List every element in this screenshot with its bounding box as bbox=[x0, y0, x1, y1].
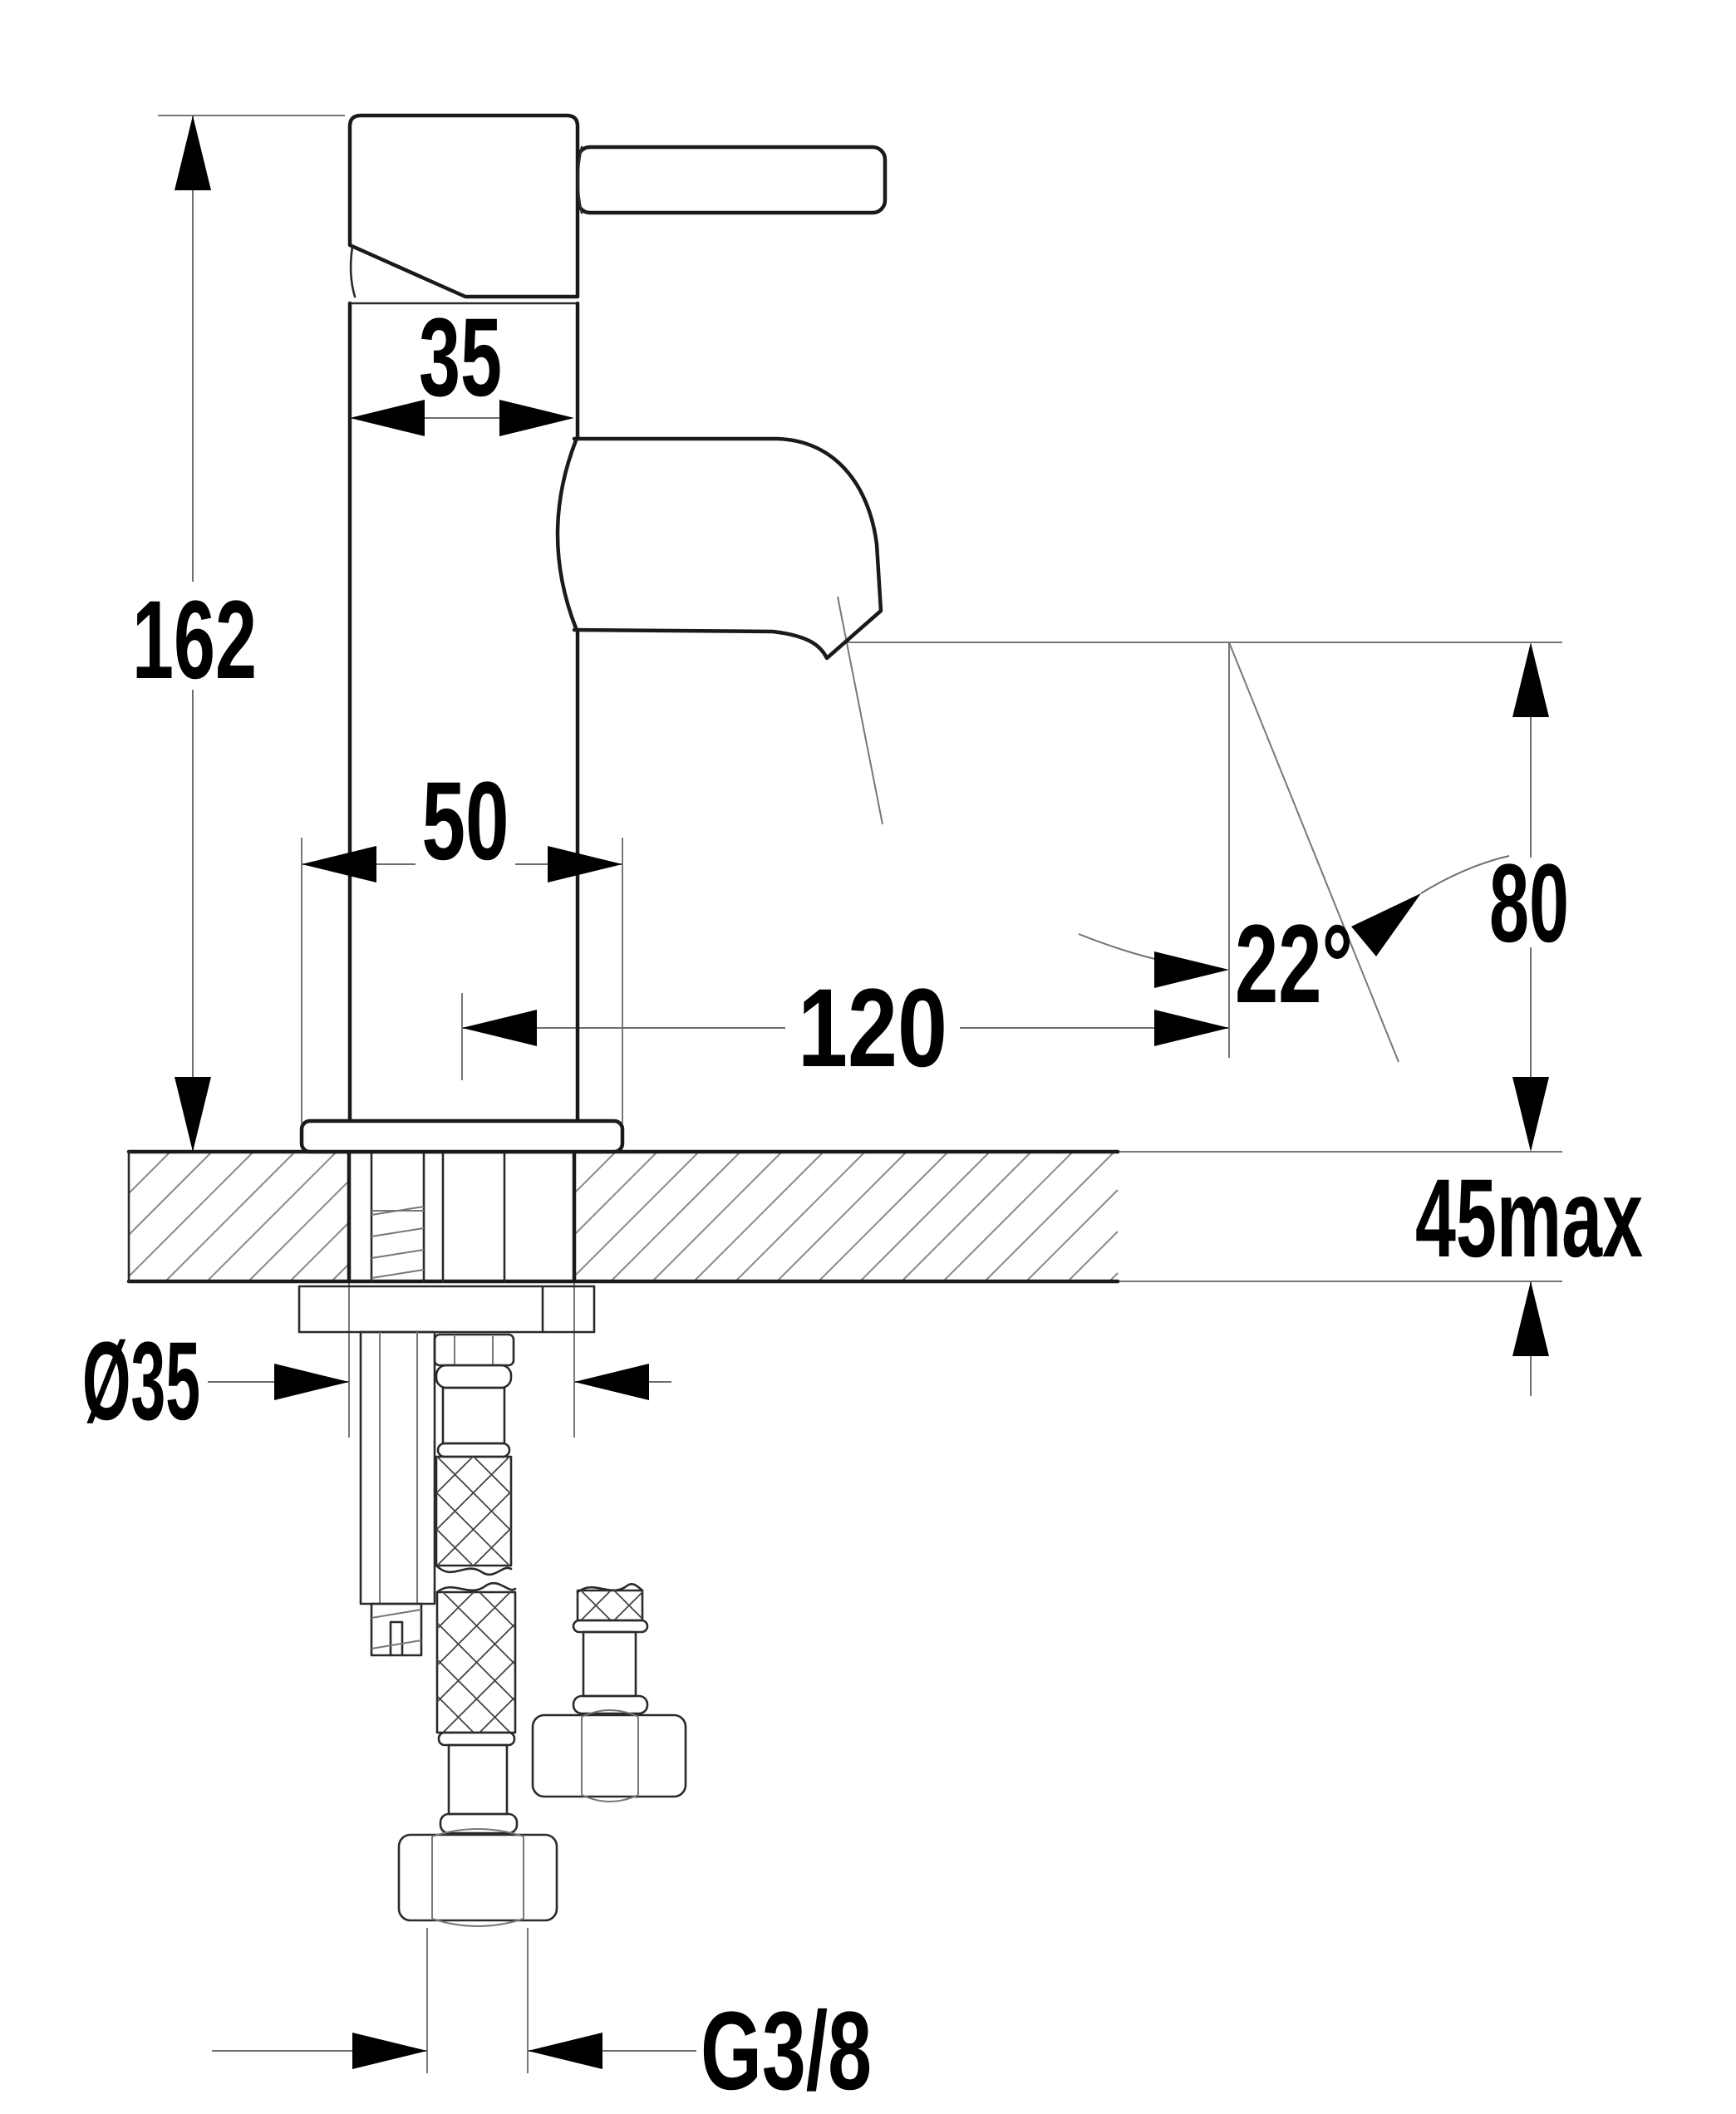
pattern-line bbox=[652, 1152, 782, 1281]
mounting-washer bbox=[299, 1286, 594, 1332]
arrow-45max-up bbox=[1512, 1281, 1549, 1356]
pattern-line bbox=[694, 1152, 824, 1281]
technical-drawing: 162 35 50 120 22° 80 45max Ø35 G3/8 bbox=[0, 0, 1736, 2114]
pattern-line bbox=[437, 1457, 511, 1531]
pattern-line bbox=[248, 1181, 349, 1281]
hose2-collar bbox=[573, 1620, 647, 1632]
dim-label-base-width: 50 bbox=[422, 760, 509, 883]
head-pivot-seam bbox=[351, 247, 355, 297]
hose1-break-edge-top bbox=[436, 1566, 511, 1575]
hose2-braid bbox=[578, 1590, 642, 1620]
arrow-angle-arc bbox=[1154, 951, 1229, 988]
arrow-hole-right bbox=[574, 1364, 649, 1400]
hose2-tube bbox=[583, 1632, 636, 1696]
arrow-162-down bbox=[175, 1077, 211, 1152]
pattern-line bbox=[1026, 1190, 1118, 1281]
pattern-line bbox=[943, 1152, 1073, 1281]
hose1-braid-upper-pattern bbox=[436, 1457, 511, 1566]
hose2-braid-pattern bbox=[581, 1590, 642, 1620]
rod-tip-line-2 bbox=[371, 1640, 421, 1649]
stud-thread-3 bbox=[371, 1250, 424, 1258]
spout-outline bbox=[574, 439, 881, 658]
dim-label-spout-reach: 120 bbox=[798, 966, 947, 1090]
drawing-canvas: 162 35 50 120 22° 80 45max Ø35 G3/8 bbox=[0, 0, 1736, 2114]
stud-thread-2 bbox=[371, 1228, 424, 1236]
dim-label-body-width: 35 bbox=[419, 296, 502, 420]
hose1-g38-nut bbox=[399, 1835, 557, 1920]
pattern-line bbox=[129, 1152, 253, 1276]
worktop-hatch-right bbox=[574, 1152, 1118, 1281]
dim-label-deck-thickness: 45max bbox=[1415, 1157, 1643, 1281]
pattern-line bbox=[129, 1152, 212, 1235]
pattern-line bbox=[332, 1264, 349, 1281]
hose1-lower-ring bbox=[440, 1814, 517, 1833]
pattern-line bbox=[479, 1592, 515, 1628]
hose1-top-tube bbox=[443, 1388, 504, 1443]
arrow-120-left bbox=[462, 1010, 537, 1046]
pattern-line bbox=[443, 1660, 515, 1733]
spout-body-intersection-curve bbox=[558, 440, 576, 628]
hose1-top-nut bbox=[435, 1335, 514, 1365]
arrow-35-right bbox=[499, 400, 574, 436]
arrow-50-right bbox=[548, 846, 622, 882]
fixing-rod bbox=[361, 1332, 435, 1604]
arrow-thread-right bbox=[528, 2033, 602, 2069]
hose1-top-collar bbox=[436, 1365, 511, 1388]
pattern-line bbox=[735, 1152, 865, 1281]
pattern-line bbox=[479, 1697, 515, 1733]
pattern-line bbox=[777, 1152, 907, 1281]
arrow-80-up bbox=[1512, 642, 1549, 717]
pattern-line bbox=[437, 1592, 510, 1665]
pattern-line bbox=[437, 1696, 474, 1733]
pattern-line bbox=[437, 1492, 511, 1566]
pattern-line bbox=[985, 1152, 1114, 1281]
pattern-line bbox=[614, 1590, 642, 1619]
pattern-line bbox=[614, 1592, 642, 1620]
pattern-line bbox=[574, 1152, 616, 1193]
pattern-line bbox=[165, 1152, 295, 1281]
hose1-lower-collar bbox=[439, 1733, 514, 1745]
arrow-thread-left bbox=[352, 2033, 427, 2069]
pattern-line bbox=[207, 1152, 337, 1281]
dim-label-hole-diameter: Ø35 bbox=[82, 1320, 200, 1443]
arrow-50-left bbox=[302, 846, 376, 882]
pattern-line bbox=[860, 1152, 990, 1281]
arrow-120-right bbox=[1154, 1010, 1229, 1046]
stud-thread-4 bbox=[371, 1270, 424, 1278]
pattern-line bbox=[574, 1152, 657, 1235]
rod-tip-line-1 bbox=[371, 1610, 421, 1618]
arrow-35-left bbox=[350, 400, 425, 436]
base-flange bbox=[302, 1121, 622, 1152]
hose1-lower-tube bbox=[449, 1745, 507, 1814]
pattern-line bbox=[443, 1592, 515, 1664]
arrow-angle-leader bbox=[1351, 893, 1421, 956]
pattern-line bbox=[1068, 1232, 1118, 1281]
hose1-band bbox=[438, 1443, 509, 1457]
pattern-line bbox=[574, 1152, 699, 1276]
dim-label-connection-thread: G3/8 bbox=[701, 1989, 872, 2113]
arrow-162-up bbox=[175, 116, 211, 190]
pattern-line bbox=[611, 1152, 740, 1281]
pattern-line bbox=[474, 1528, 511, 1566]
pattern-line bbox=[819, 1152, 948, 1281]
pattern-line bbox=[129, 1152, 170, 1193]
arrow-80-down bbox=[1512, 1077, 1549, 1152]
hose1-braid-lower-pattern bbox=[437, 1592, 515, 1733]
pattern-line bbox=[902, 1152, 1031, 1281]
mixer-head bbox=[350, 116, 578, 297]
dim-label-spout-angle: 22° bbox=[1235, 902, 1353, 1026]
fixing-rod-slot bbox=[391, 1622, 402, 1655]
worktop-hatch-left bbox=[129, 1152, 349, 1281]
hose1-braid-upper bbox=[436, 1457, 511, 1566]
pattern-line bbox=[437, 1592, 474, 1629]
pattern-line bbox=[474, 1457, 511, 1494]
dim-label-overall-height: 162 bbox=[132, 578, 257, 702]
hose2-g38-nut bbox=[533, 1715, 686, 1797]
pattern-line bbox=[437, 1659, 510, 1733]
arrow-hole-left bbox=[274, 1364, 349, 1400]
hose1-break-edge-bottom bbox=[437, 1583, 515, 1592]
dim-label-spout-height: 80 bbox=[1489, 842, 1569, 966]
lever-handle bbox=[578, 147, 885, 213]
